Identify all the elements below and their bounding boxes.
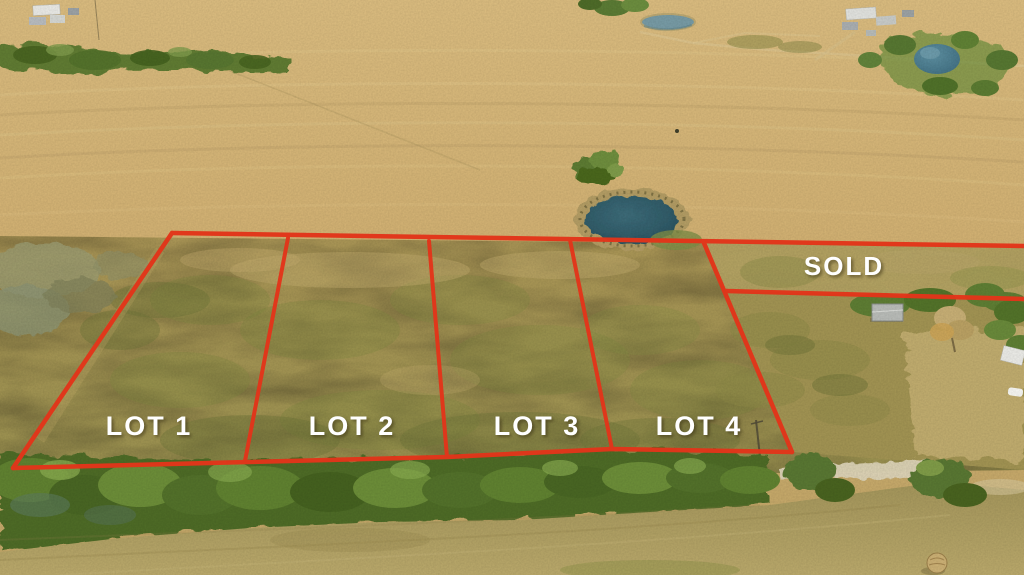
lot-3-label: LOT 3 [494,411,581,441]
lot-1-label: LOT 1 [106,411,193,441]
lot-4-label: LOT 4 [656,411,743,441]
aerial-photo-canvas: LOT 1 LOT 2 LOT 3 LOT 4 SOLD [0,0,1024,575]
lot-2-label: LOT 2 [309,411,396,441]
aerial-lot-photo: LOT 1 LOT 2 LOT 3 LOT 4 SOLD [0,0,1024,575]
sold-label: SOLD [804,251,884,281]
